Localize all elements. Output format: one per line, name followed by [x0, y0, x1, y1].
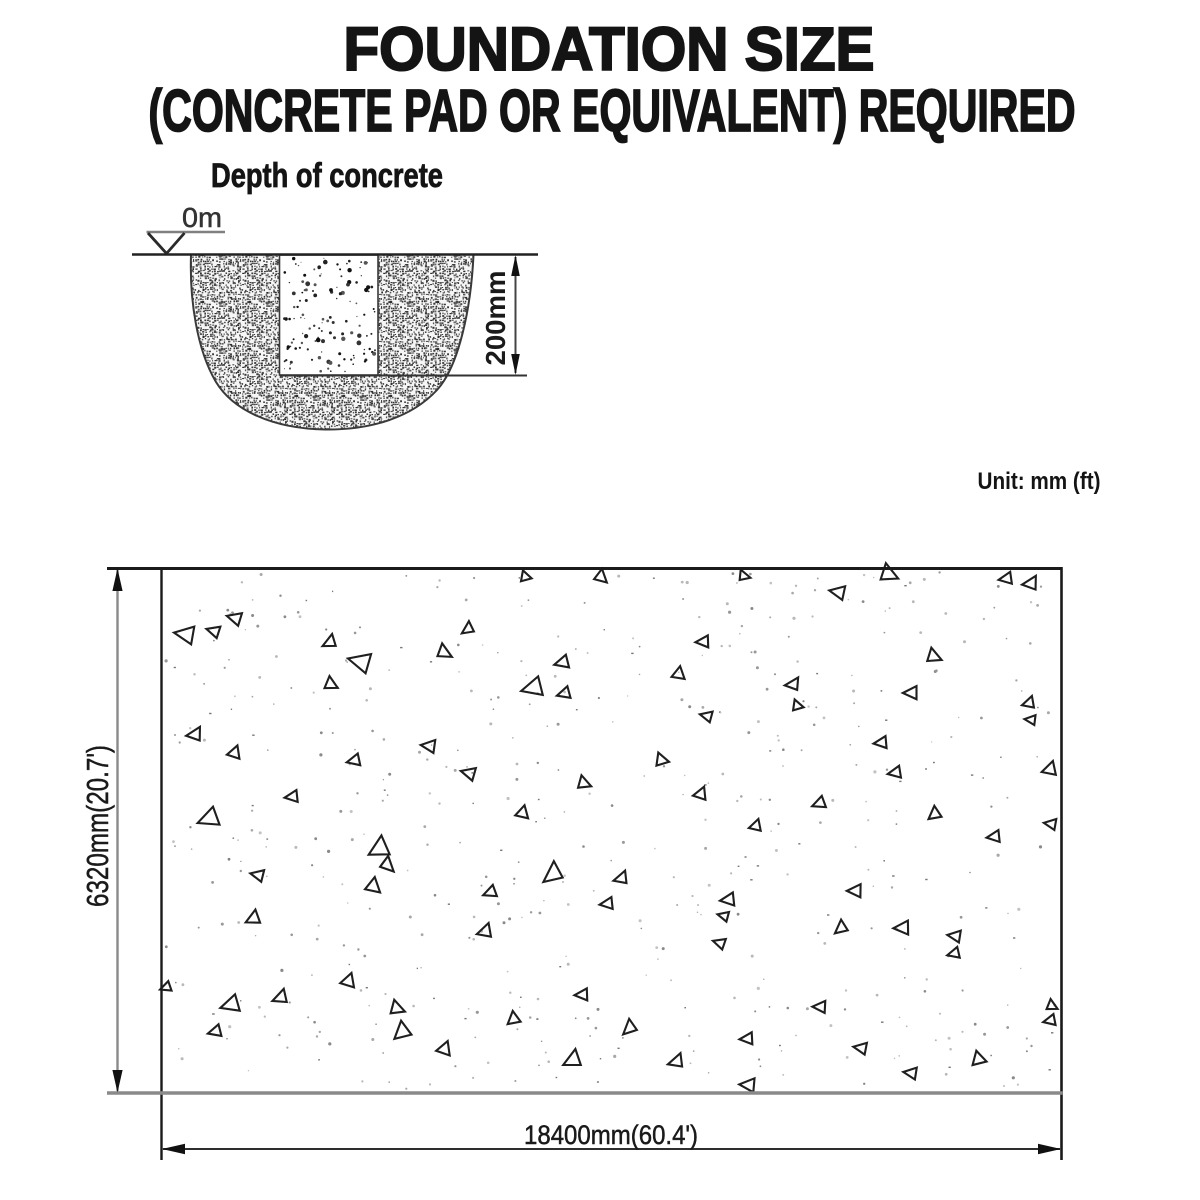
- svg-text:FOUNDATION SIZE: FOUNDATION SIZE: [344, 15, 875, 83]
- svg-text:18400mm(60.4'): 18400mm(60.4'): [524, 1120, 698, 1150]
- svg-text:Depth of concrete: Depth of concrete: [211, 157, 443, 195]
- svg-text:(CONCRETE PAD OR EQUIVALENT) R: (CONCRETE PAD OR EQUIVALENT) REQUIRED: [149, 78, 1076, 144]
- svg-text:200mm: 200mm: [480, 271, 511, 366]
- svg-text:0m: 0m: [182, 202, 222, 233]
- svg-text:Unit: mm (ft): Unit: mm (ft): [978, 468, 1101, 495]
- svg-text:6320mm(20.7'): 6320mm(20.7'): [80, 745, 115, 907]
